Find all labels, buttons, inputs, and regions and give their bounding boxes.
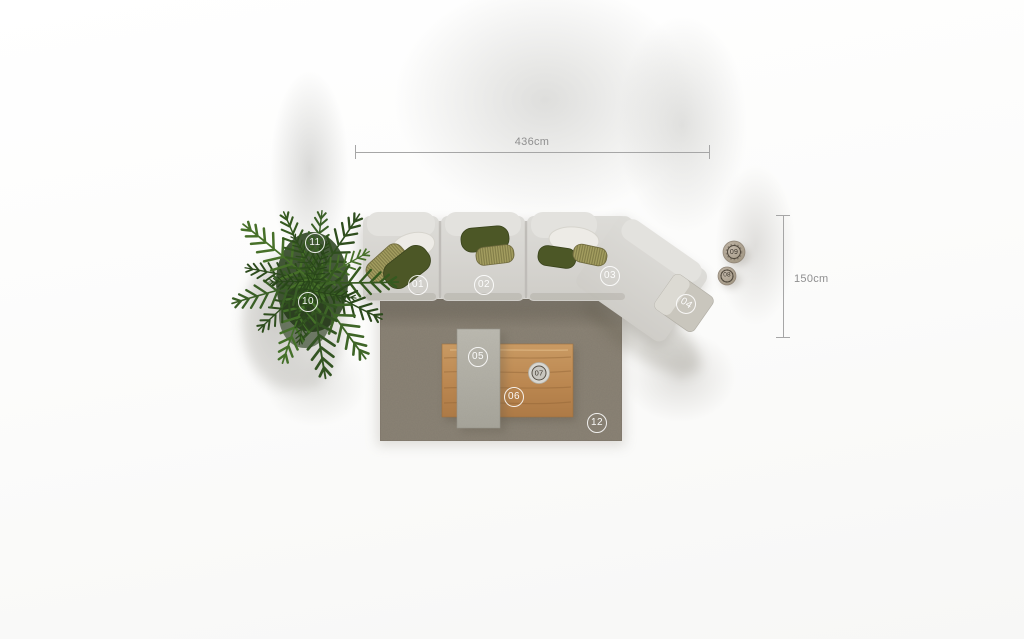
depth-dimension-label: 150cm [794,273,829,285]
width-dimension-label: 436cm [515,136,550,148]
marker-plant-11[interactable]: 11 [305,233,325,253]
marker-concrete-table-05[interactable]: 05 [468,347,488,367]
marker-wood-table-06[interactable]: 06 [504,387,524,407]
marker-side-decor-08[interactable]: 08 [721,270,734,283]
concrete-tray-table [457,329,506,433]
marker-bowl-07[interactable]: 07 [532,366,547,381]
marker-sofa-module-03[interactable]: 03 [600,266,620,286]
marker-plant-10[interactable]: 10 [298,292,318,312]
marker-sofa-module-01[interactable]: 01 [408,275,428,295]
furniture-top-view-scene: 436cm 150cm 01 02 03 04 05 06 07 08 09 1… [0,0,1024,639]
scene-art [0,0,1024,639]
marker-rug-12[interactable]: 12 [587,413,607,433]
marker-side-decor-09[interactable]: 09 [727,245,741,259]
marker-sofa-module-02[interactable]: 02 [474,275,494,295]
